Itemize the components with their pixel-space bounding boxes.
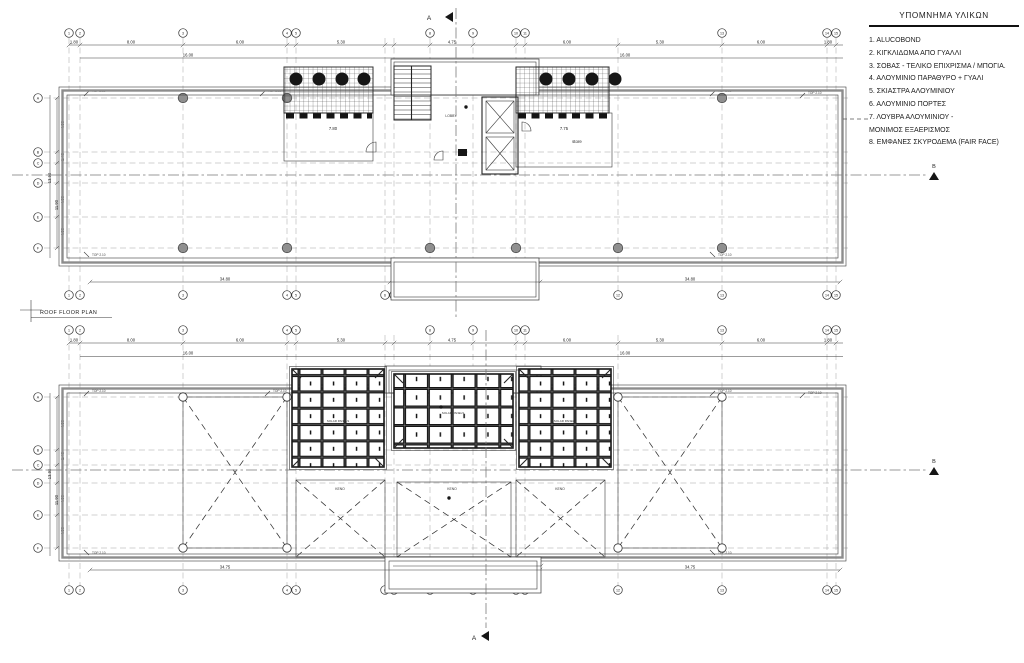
grid-bubble-label: 9 [472, 31, 474, 35]
legend-item: 3. ΣΟΒΑΣ - ΤΕΛΙΚΟ ΕΠΙΧΡΙΣΜΑ / ΜΠΟΓΙΑ. [869, 61, 1019, 74]
note-arrow [710, 252, 715, 257]
keno-label: ΚΕΝΟ [335, 487, 345, 491]
level-marker [447, 496, 450, 499]
legend-item: 2. ΚΙΓΚΛΙΔΩΜΑ ΑΠΟ ΓΥΑΛΛΙ [869, 48, 1019, 61]
grid-bubble-label: 1 [68, 588, 70, 592]
section-a-label: A [427, 15, 432, 22]
keno-label: ΚΕΝΟ [447, 487, 457, 491]
keno-label: ΚΕΝΟ [555, 487, 565, 491]
dimension-text: 6.00 [563, 338, 572, 343]
structural-column [613, 243, 623, 253]
grid-bubble-label: 3 [182, 293, 184, 297]
grid-bubble-label: 13 [720, 588, 724, 592]
top-plan-inner-outline [67, 95, 838, 258]
grid-bubble-label: 15 [834, 293, 838, 297]
grid-bubble-label: 4 [286, 588, 288, 592]
equipment-unit [358, 73, 371, 86]
lobby-label: LOBBY [445, 114, 457, 118]
dimension-text: 16.00 [620, 351, 631, 356]
grid-bubble-label: 12 [616, 293, 620, 297]
note-arrow [710, 391, 715, 396]
door-swing [434, 151, 443, 160]
dimension-text: 1.80 [824, 338, 833, 343]
note-arrow [84, 252, 89, 257]
dimension-text: 11.90 [54, 199, 59, 210]
grid-bubble-label: 8 [429, 31, 431, 35]
grid-bubble-label: 4 [286, 328, 288, 332]
grid-bubble-label: 1 [68, 293, 70, 297]
grid-bubble-label: 4 [286, 31, 288, 35]
grid-bubble-label: 5 [295, 328, 297, 332]
grid-bubble-label: 15 [834, 31, 838, 35]
grid-bubble-label: 14 [825, 588, 829, 592]
structural-column [178, 243, 188, 253]
column-circle [718, 544, 726, 552]
section-lines: A A B B [12, 8, 939, 642]
equipment-unit [313, 73, 326, 86]
top-level-note: TOP 2.10 [92, 551, 106, 555]
store-room [516, 113, 612, 167]
door-swing [366, 142, 376, 152]
grid-bubble-label: 5 [295, 588, 297, 592]
solar-panels-label: SOLAR PANELS [554, 419, 577, 423]
bottom-plan-center-bottom-block [385, 557, 541, 593]
grid-bubble-label: 2 [79, 588, 81, 592]
section-a-label: A [472, 635, 477, 642]
dimension-text: 16.00 [620, 53, 631, 58]
dimension-text: 5.30 [656, 338, 665, 343]
grid-bubble-label: 15 [834, 328, 838, 332]
structural-column [511, 243, 521, 253]
dimension-text: 6.00 [563, 40, 572, 45]
equipment-unit [336, 73, 349, 86]
drawing-sheet: 11223344556788991010111112131314141515AB… [0, 0, 1024, 663]
dimension-text: 34.75 [220, 565, 231, 570]
dimension-text: 5.30 [337, 40, 346, 45]
dimension-lines [50, 45, 843, 570]
top-plan: LOBBY store [59, 59, 846, 300]
equipment-unit [586, 73, 599, 86]
column-circle [614, 544, 622, 552]
plan-title-text: ROOF FLOOR PLAN [40, 310, 97, 316]
dimension-text: 4.75 [448, 338, 457, 343]
grid-bubble-label: 2 [79, 328, 81, 332]
structural-column [282, 243, 292, 253]
grid-bubble-label: 8 [429, 328, 431, 332]
grid-bubble-label: 5 [295, 31, 297, 35]
note-arrow [800, 93, 805, 98]
grid-bubble-label: 2 [79, 31, 81, 35]
note-arrow [265, 391, 270, 396]
note-arrow [800, 393, 805, 398]
grid-bubble-label: 14 [825, 328, 829, 332]
dimension-text: 6.00 [757, 338, 766, 343]
legend-item: 5. ΣΚΙΑΣΤΡΑ ΑΛΟΥΜΙΝΙΟΥ [869, 86, 1019, 99]
generated-grid-layer: 11223344556788991010111112131314141515AB… [34, 29, 848, 595]
section-b-label: B [932, 459, 936, 465]
column-circle [283, 544, 291, 552]
legend-divider [869, 25, 1019, 27]
section-b-marker-triangle [929, 172, 939, 180]
dimension-text: 1.80 [70, 338, 79, 343]
grid-bubble-label: C [37, 463, 40, 467]
dimension-text: 8.00 [127, 40, 136, 45]
dimension-text: 16.00 [183, 351, 194, 356]
plan-title: ROOF FLOOR PLAN [20, 300, 112, 322]
structural-column [425, 243, 435, 253]
legend-item: 6. ΑΛΟΥΜΙΝΙΟ ΠΟΡΤΕΣ [869, 99, 1019, 112]
grid-bubble-label: 13 [720, 31, 724, 35]
dimension-text: 7.75 [560, 126, 569, 131]
grid-bubble-label: 10 [514, 31, 518, 35]
bottom-plan: SOLAR PANELS SOLAR PANELS SOLAR PANELS Κ… [59, 366, 846, 593]
column-circle [283, 393, 291, 401]
grid-bubble-label: 11 [523, 31, 527, 35]
dimension-text: 11.90 [54, 494, 59, 505]
grid-bubble-label: 11 [523, 328, 527, 332]
grid-bubble-label: 15 [834, 588, 838, 592]
solar-panels-label: SOLAR PANELS [442, 411, 465, 415]
grid-bubble-label: 4 [286, 293, 288, 297]
fixture [458, 149, 467, 156]
dimension-text: 4.75 [448, 40, 457, 45]
dimension-text: 6.00 [236, 338, 245, 343]
dimension-text: 34.75 [685, 565, 696, 570]
level-marker [464, 105, 467, 108]
note-arrow [84, 391, 89, 396]
structural-column [717, 243, 727, 253]
equipment-unit [540, 73, 553, 86]
dimension-text: 7.80 [329, 126, 338, 131]
dimension-text: 13.90 [47, 172, 52, 183]
equipment-unit [563, 73, 576, 86]
dimension-text: 6.00 [236, 40, 245, 45]
dimension-text: 5.30 [337, 338, 346, 343]
grid-bubble-label: 3 [182, 31, 184, 35]
dimension-text: 1.80 [70, 40, 79, 45]
solar-panels-label: SOLAR PANELS [327, 419, 350, 423]
grid-bubble-label: 12 [616, 588, 620, 592]
grid-bubble-label: 6 [384, 293, 386, 297]
equipment-unit [609, 73, 622, 86]
door-swing [522, 122, 531, 131]
legend-item: 8. ΕΜΦΑΝΕΣ ΣΚΥΡΟΔΕΜΑ (FAIR FACE) [869, 137, 1019, 150]
grid-bubble-label: 13 [720, 328, 724, 332]
store-label: store [572, 139, 582, 144]
grid-bubble-label: 3 [182, 328, 184, 332]
grid-bubble-label: 2 [79, 293, 81, 297]
grid-bubble-label: 10 [514, 328, 518, 332]
legend-item: 7. ΛΟΥΒΡΑ ΑΛΟΥΜΙΝΙΟΥ - ΜΟΝΙΜΟΣ ΕΞΑΕΡΙΣΜΟ… [869, 112, 1019, 138]
column-circle [179, 544, 187, 552]
grid-bubble-label: 3 [182, 588, 184, 592]
dimension-text: 16.00 [183, 53, 194, 58]
legend-title: ΥΠΟΜΝΗΜΑ ΥΛΙΚΩΝ [869, 11, 1019, 25]
column-circle [718, 393, 726, 401]
dimension-text: 6.00 [757, 40, 766, 45]
legend-item: 1. ALUCOBOND [869, 35, 1019, 48]
grid-bubble-label: D [37, 481, 40, 485]
grid-bubble-label: C [37, 161, 40, 165]
materials-legend: ΥΠΟΜΝΗΜΑ ΥΛΙΚΩΝ 1. ALUCOBOND 2. ΚΙΓΚΛΙΔΩ… [869, 11, 1019, 150]
grid-bubble-label: D [37, 181, 40, 185]
grid-bubble-label: 1 [68, 328, 70, 332]
section-b-marker-triangle [929, 467, 939, 475]
section-b-label: B [932, 164, 936, 170]
dimension-text: 1.80 [824, 40, 833, 45]
level-marker [439, 405, 442, 408]
solar-panel-grid-right [519, 369, 611, 467]
top-plan-center-bottom-block [391, 258, 539, 300]
top-level-note: TOP 2.10 [718, 253, 732, 257]
section-a-marker-triangle [481, 631, 489, 641]
structural-column [178, 93, 188, 103]
grid-bubble-label: 14 [825, 31, 829, 35]
grid-bubble-label: 1 [68, 31, 70, 35]
column-circle [614, 393, 622, 401]
grid-bubble-label: 13 [720, 293, 724, 297]
top-level-note: TOP 2.10 [92, 253, 106, 257]
grid-bubble-label: 14 [825, 293, 829, 297]
dimension-text: 5.30 [656, 40, 665, 45]
dimension-text: 8.00 [127, 338, 136, 343]
section-a-marker-triangle [445, 12, 453, 22]
staircase [394, 66, 431, 120]
grid-bubble-label: 5 [295, 293, 297, 297]
elevator-shaft [482, 97, 518, 174]
structural-column [717, 93, 727, 103]
column-circle [179, 393, 187, 401]
equipment-unit [290, 73, 303, 86]
dimension-text: 34.80 [685, 277, 696, 282]
solar-panel-grid-left [292, 369, 384, 467]
grid-bubble-label: 9 [472, 328, 474, 332]
dimension-text: 34.80 [220, 277, 231, 282]
legend-item: 4. ΑΛΟΥΜΙΝΙΟ ΠΑΡΑΘΥΡΟ + ΓΥΑΛΙ [869, 73, 1019, 86]
